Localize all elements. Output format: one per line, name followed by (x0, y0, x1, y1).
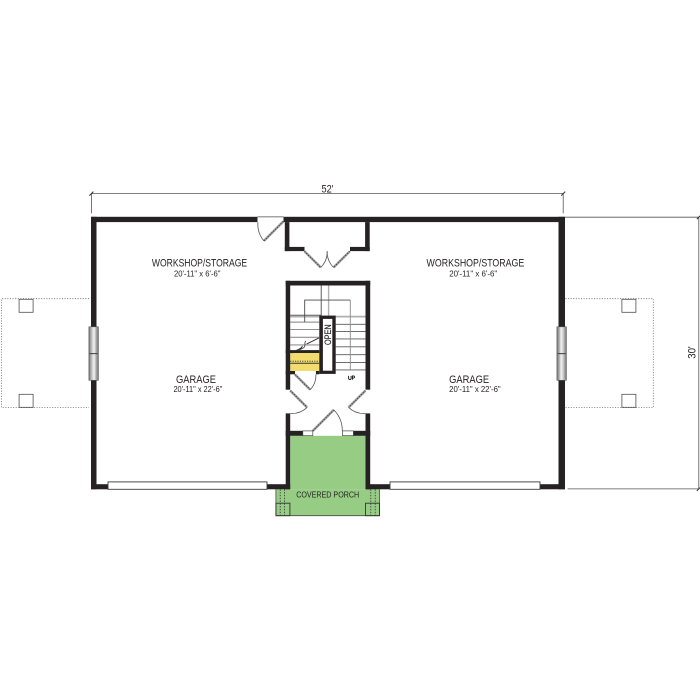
svg-text:WORKSHOP/STORAGE: WORKSHOP/STORAGE (152, 258, 247, 270)
svg-text:52': 52' (322, 183, 334, 195)
svg-text:30': 30' (687, 346, 699, 359)
svg-text:20'-11" x 22'-6": 20'-11" x 22'-6" (449, 385, 501, 394)
svg-text:20'-11" x 6'-6": 20'-11" x 6'-6" (174, 269, 221, 278)
svg-text:COVERED PORCH: COVERED PORCH (296, 490, 359, 500)
svg-text:20'-11" x 22'-6": 20'-11" x 22'-6" (173, 385, 222, 394)
svg-text:20'-11" x 6'-6": 20'-11" x 6'-6" (449, 269, 497, 278)
svg-text:OPEN: OPEN (323, 324, 333, 345)
svg-text:WORKSHOP/STORAGE: WORKSHOP/STORAGE (427, 258, 525, 270)
